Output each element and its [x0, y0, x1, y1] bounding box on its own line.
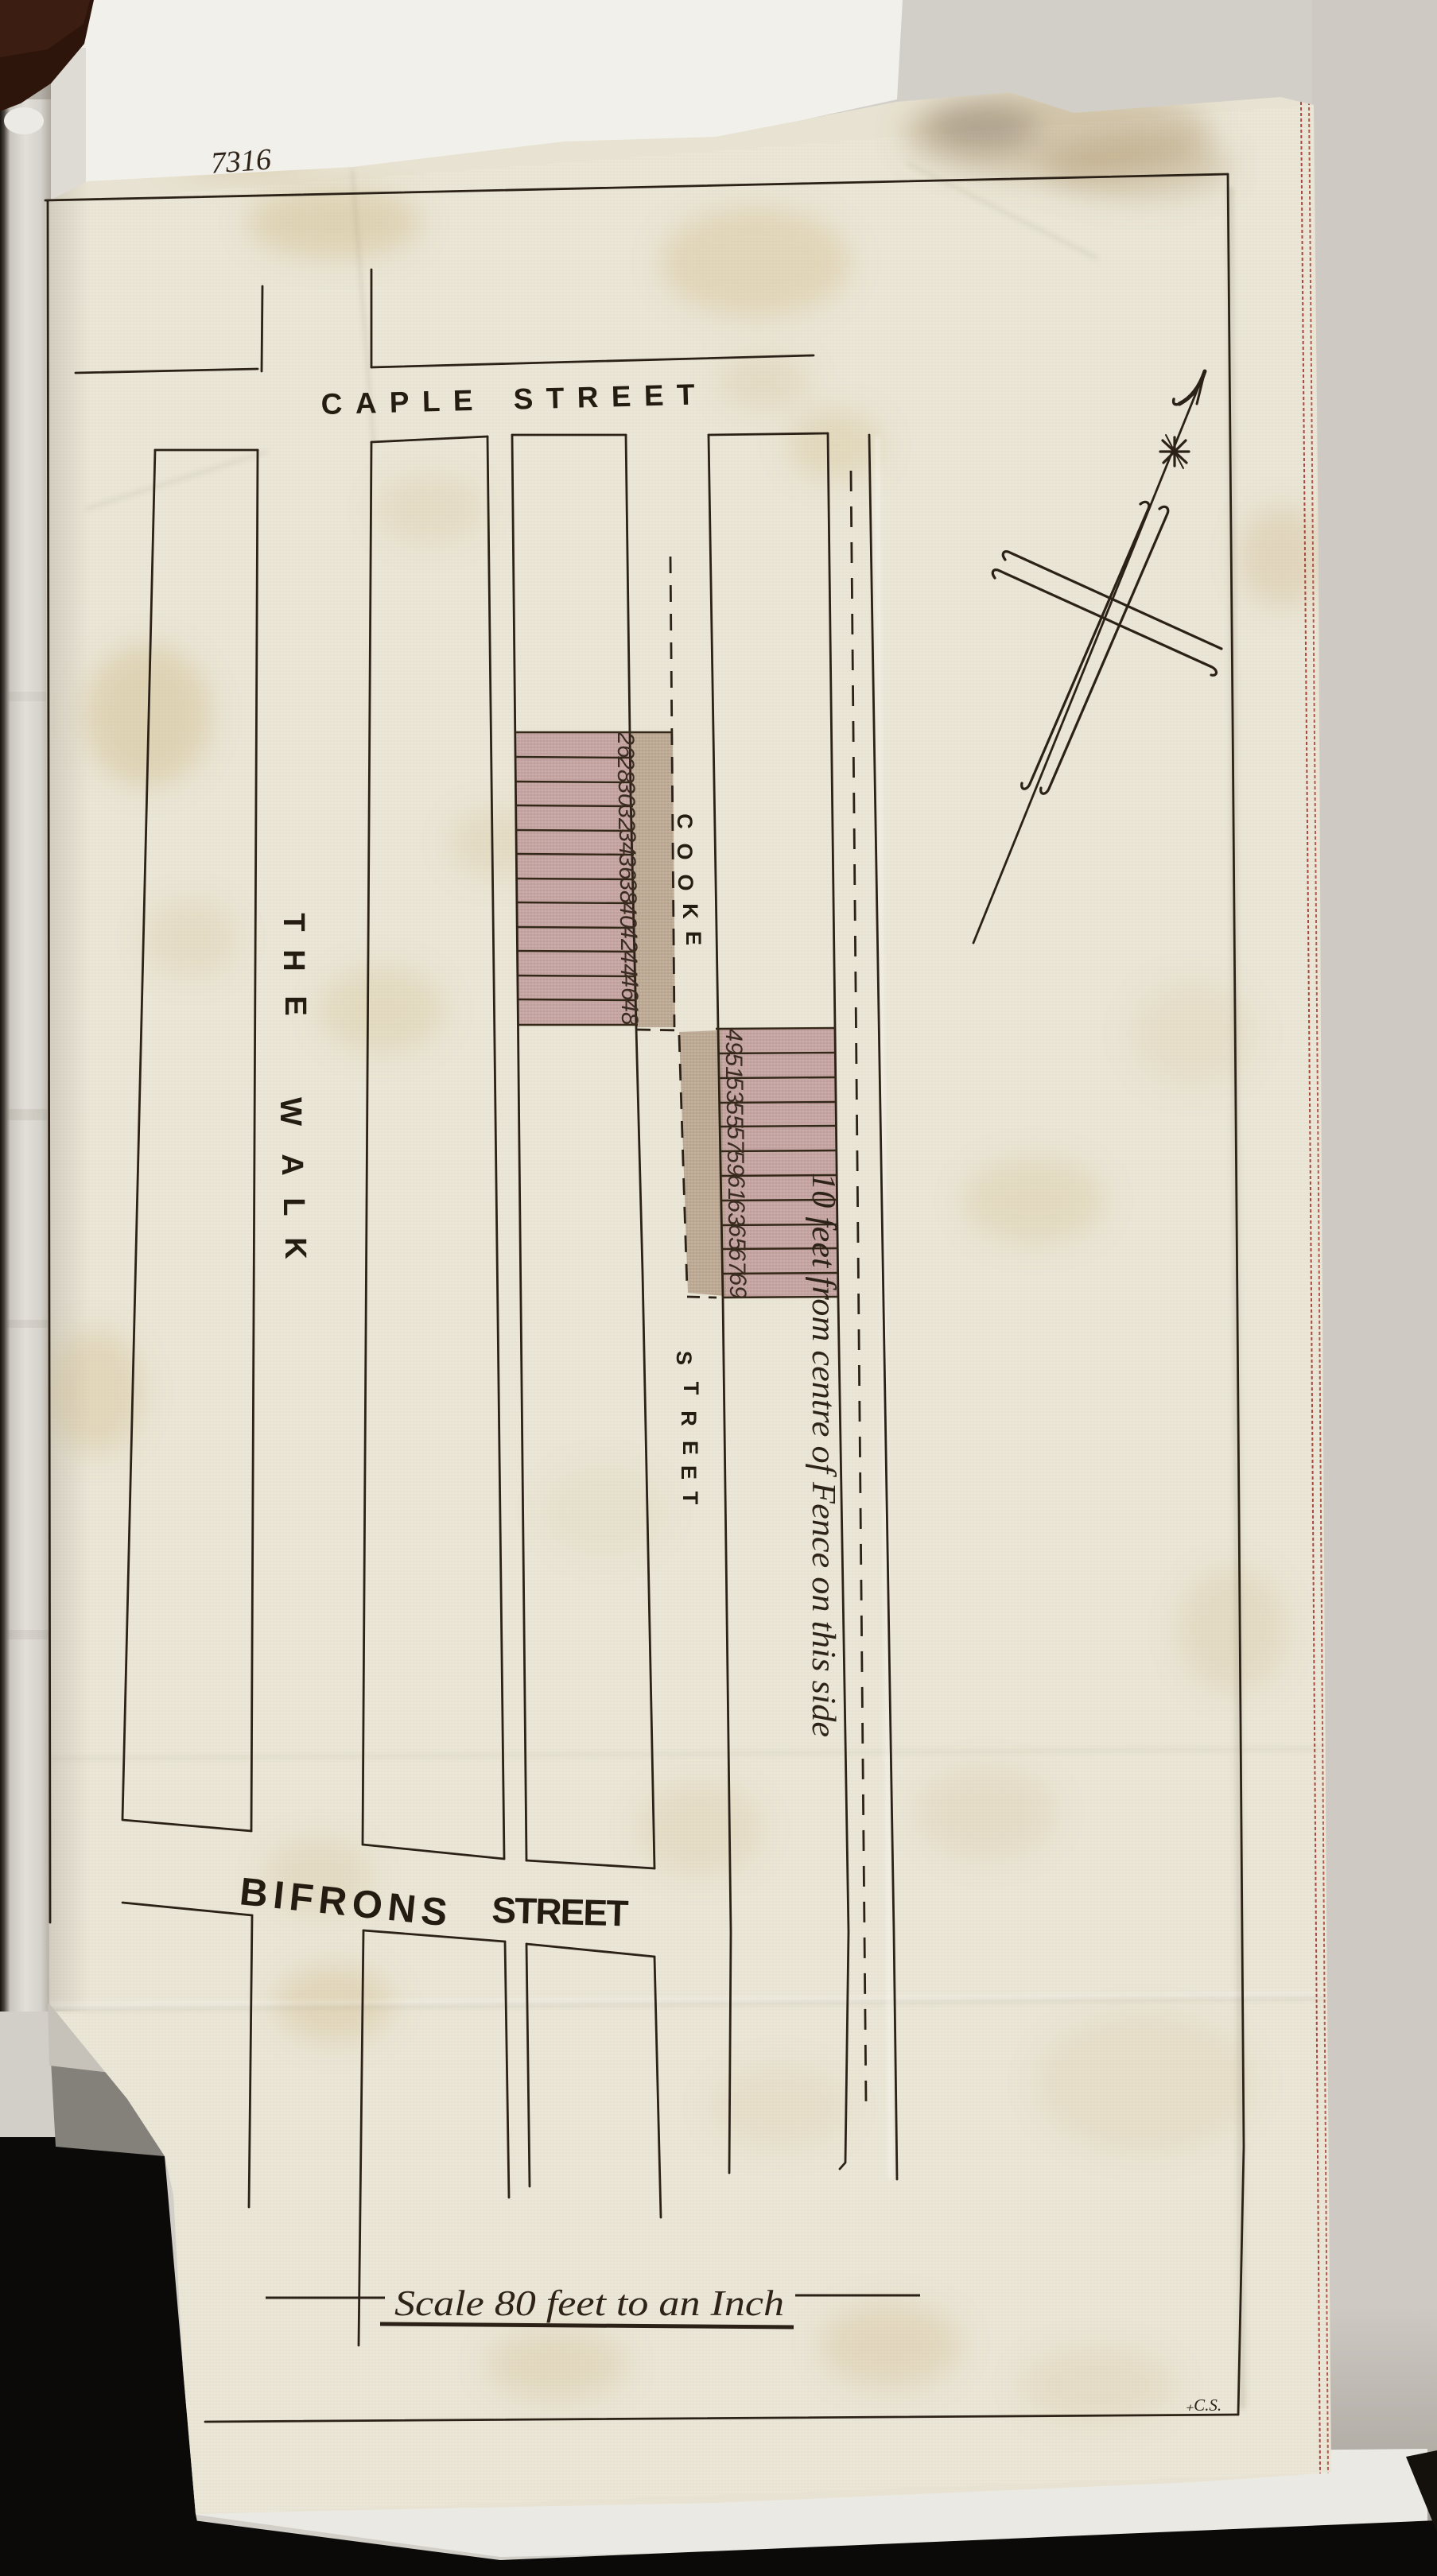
- svg-text:34: 34: [614, 828, 640, 855]
- svg-text:₊C.S.: ₊C.S.: [1185, 2396, 1221, 2415]
- svg-text:A: A: [275, 1154, 309, 1175]
- svg-text:55: 55: [721, 1101, 748, 1128]
- svg-text:32: 32: [613, 805, 639, 832]
- svg-text:H: H: [277, 949, 310, 971]
- svg-text:46: 46: [616, 974, 643, 1001]
- svg-text:Scale 80 feet to an Inch: Scale 80 feet to an Inch: [394, 2283, 784, 2323]
- svg-text:49: 49: [720, 1028, 747, 1055]
- svg-text:59: 59: [722, 1150, 748, 1177]
- svg-text:67: 67: [724, 1247, 750, 1275]
- svg-text:T: T: [277, 913, 310, 931]
- svg-text:48: 48: [616, 999, 643, 1026]
- svg-text:53: 53: [721, 1077, 748, 1104]
- svg-text:E: E: [678, 1441, 702, 1455]
- svg-text:E: E: [682, 931, 705, 945]
- svg-text:STREET: STREET: [491, 1889, 629, 1934]
- svg-text:36: 36: [614, 853, 640, 880]
- svg-text:K: K: [278, 1237, 312, 1259]
- svg-text:30: 30: [613, 780, 639, 807]
- svg-text:E: E: [677, 1465, 701, 1480]
- svg-text:63: 63: [723, 1199, 749, 1226]
- svg-text:7316: 7316: [210, 143, 273, 180]
- svg-text:T: T: [678, 1492, 702, 1505]
- svg-text:S: S: [672, 1351, 696, 1365]
- svg-text:T: T: [679, 1382, 703, 1395]
- svg-text:L: L: [277, 1197, 310, 1216]
- svg-text:O: O: [673, 843, 697, 859]
- svg-text:42: 42: [616, 925, 642, 952]
- svg-text:40: 40: [615, 902, 641, 929]
- svg-text:38: 38: [615, 877, 641, 904]
- svg-text:51: 51: [720, 1053, 747, 1079]
- svg-text:26: 26: [612, 731, 639, 758]
- svg-text:28: 28: [612, 755, 639, 783]
- svg-text:O: O: [674, 874, 697, 890]
- svg-text:K: K: [678, 903, 702, 919]
- svg-text:W: W: [274, 1097, 307, 1126]
- svg-text:65: 65: [724, 1224, 750, 1251]
- svg-text:10 feet from centre of Fence o: 10 feet from centre of Fence on this sid…: [805, 1173, 841, 1737]
- svg-text:69: 69: [724, 1272, 751, 1299]
- svg-text:C: C: [673, 813, 697, 829]
- svg-text:44: 44: [616, 950, 642, 976]
- svg-text:61: 61: [723, 1174, 749, 1201]
- svg-text:R: R: [677, 1410, 701, 1426]
- svg-text:E: E: [278, 995, 312, 1015]
